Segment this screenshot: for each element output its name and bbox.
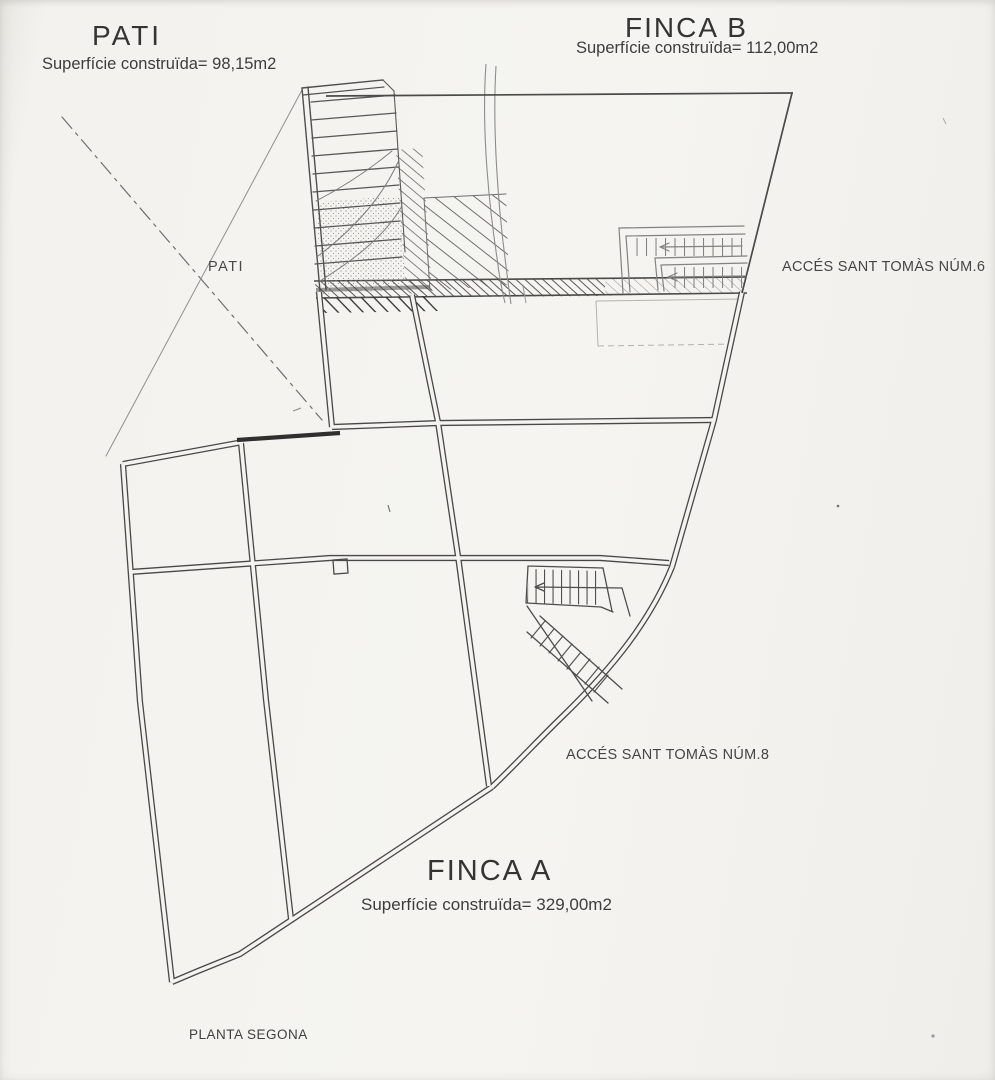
stair-middle <box>526 566 630 703</box>
pati-room-label: PATI <box>208 260 244 276</box>
sketch-stair-pati <box>302 80 509 294</box>
access-sant-tomas-6-label: ACCÉS SANT TOMÀS NÚM.6 <box>782 260 985 276</box>
finca-a-area-label: Superfície construïda= 329,00m2 <box>361 896 612 915</box>
pati-title: PATI <box>92 21 162 52</box>
plan-name-label: PLANTA SEGONA <box>189 1028 308 1043</box>
finca-b-area-label: Superfície construïda= 112,00m2 <box>576 39 818 57</box>
pati-area-label: Superfície construïda= 98,15m2 <box>42 55 276 73</box>
pencil-sketch-lines <box>485 64 741 346</box>
finca-a-title: FINCA A <box>427 856 552 888</box>
floor-plan-drawing <box>0 0 995 1080</box>
access-sant-tomas-8-label: ACCÉS SANT TOMÀS NÚM.8 <box>566 748 769 764</box>
pati-boundary-lines <box>62 90 322 456</box>
scanned-floor-plan-sheet: PATI Superfície construïda= 98,15m2 FINC… <box>0 0 995 1080</box>
